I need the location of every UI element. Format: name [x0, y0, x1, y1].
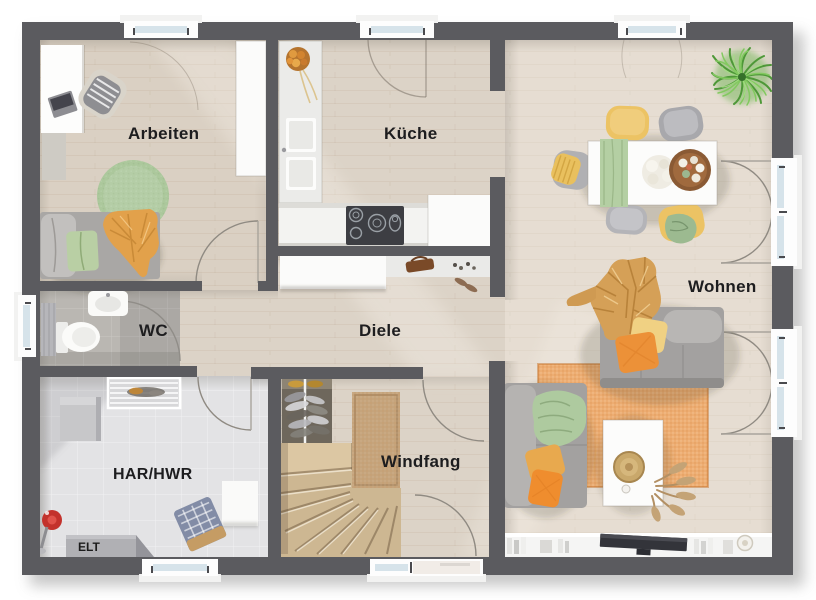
svg-text:HAR/HWR: HAR/HWR [113, 466, 193, 483]
svg-text:Diele: Diele [359, 321, 401, 340]
svg-text:WC: WC [139, 321, 168, 340]
svg-text:Windfang: Windfang [381, 452, 461, 471]
svg-text:Arbeiten: Arbeiten [128, 124, 199, 143]
svg-text:ELT: ELT [78, 540, 100, 554]
svg-text:Küche: Küche [384, 124, 437, 143]
svg-text:Wohnen: Wohnen [688, 277, 757, 296]
